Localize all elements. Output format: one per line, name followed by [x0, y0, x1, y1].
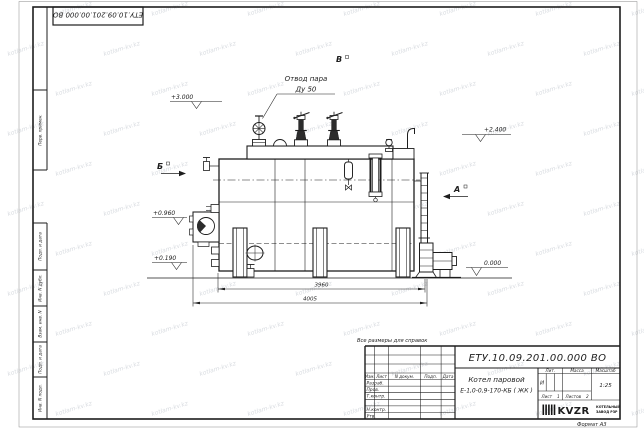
view-label-a: А [453, 185, 460, 194]
watermark-text: kotlam-kv.kz [103, 120, 142, 138]
watermark-text: kotlam-kv.kz [535, 240, 574, 258]
watermark-text: kotlam-kv.kz [7, 40, 46, 58]
watermark-text: kotlam-kv.kz [487, 280, 526, 298]
product-name-line2: Е-1,0-0,9-170-КБ ( ЖК ) [460, 388, 533, 395]
sheets-value: 2 [586, 394, 589, 399]
dome-fitting [274, 140, 287, 146]
watermark-text: kotlam-kv.kz [439, 80, 478, 98]
watermark-text: kotlam-kv.kz [295, 40, 334, 58]
watermark-text: kotlam-kv.kz [583, 200, 622, 218]
watermark-text: kotlam-kv.kz [631, 400, 644, 418]
elevation-0000: 0.000 [484, 260, 501, 267]
elevation-0190: +0.190 [154, 255, 176, 262]
reference-note: Все размеры для справок [357, 338, 428, 344]
elevation-3000: +3.000 [171, 94, 193, 101]
kvzr-logo-text: KVZR [558, 406, 590, 417]
watermark-text: kotlam-kv.kz [199, 40, 238, 58]
side-label-podp-data-2: Подп. и дата [38, 345, 43, 374]
callout-steam-line2: Ду 50 [295, 86, 317, 94]
col-data: Дата [442, 374, 454, 379]
sheets-label: Листов [565, 394, 582, 399]
view-label-b-side: Б [157, 162, 163, 171]
side-label-perv-primen: Перв. примен. [38, 114, 43, 145]
steam-outlet-valve [253, 116, 266, 146]
watermark-text: kotlam-kv.kz [439, 160, 478, 178]
col-n-dokum: N докум. [395, 374, 414, 379]
dim-3960: 3960 [315, 283, 329, 289]
watermark-text: kotlam-kv.kz [343, 80, 382, 98]
watermark-text: kotlam-kv.kz [103, 360, 142, 378]
row-prov: Пров. [367, 387, 380, 393]
elevation-2400: +2.400 [484, 127, 506, 134]
watermark-text: kotlam-kv.kz [535, 320, 574, 338]
watermark-text: kotlam-kv.kz [535, 160, 574, 178]
callout-steam-line1: Отвод пара [285, 75, 328, 83]
dim-4005: 4005 [303, 297, 317, 303]
row-n-kontr: Н.контр. [367, 407, 387, 413]
lit-header: Лит. [544, 368, 555, 373]
top-stamp-doc-number: ЕТУ.10.09.201.00.000 ВО [52, 11, 143, 19]
side-label-vzam-inv: Взам. инв. N [38, 310, 43, 338]
watermark-text: kotlam-kv.kz [151, 0, 190, 18]
masshtab-header: Масштаб [596, 368, 616, 373]
watermark-text: kotlam-kv.kz [151, 320, 190, 338]
kvzr-logo-sub2: ЗАВОД РЗР [596, 410, 618, 414]
watermark-text: kotlam-kv.kz [391, 40, 430, 58]
watermark-text: kotlam-kv.kz [535, 0, 574, 18]
watermark-text: kotlam-kv.kz [151, 400, 190, 418]
watermark-text: kotlam-kv.kz [247, 80, 286, 98]
col-list: Лист [375, 374, 387, 379]
steam-outlet-callout [263, 94, 336, 119]
watermark-text: kotlam-kv.kz [343, 320, 382, 338]
col-podp: Подп. [424, 374, 437, 379]
sheet-value: 1 [557, 394, 560, 399]
safety-valve-2 [326, 112, 342, 146]
kvzr-logo-sub1: КОТЕЛЬНЫЙ [596, 404, 620, 409]
row-razrab: Разраб. [367, 381, 384, 387]
watermark-text: kotlam-kv.kz [631, 80, 644, 98]
watermark-text: kotlam-kv.kz [343, 0, 382, 18]
watermark-text: kotlam-kv.kz [55, 320, 94, 338]
row-t-kontr: Т.контр. [367, 394, 386, 400]
watermark-text: kotlam-kv.kz [583, 40, 622, 58]
lit-value: И [540, 381, 544, 387]
side-label-inv-dubl: Инв. N дубл. [38, 274, 43, 301]
watermark-text: kotlam-kv.kz [55, 160, 94, 178]
side-label-podp-data-1: Подп. и дата [38, 232, 43, 261]
gost-drawing-svg: kotlam-kv.kzkotlam-kv.kzkotlam-kv.kzkotl… [0, 0, 644, 430]
watermark-text: kotlam-kv.kz [55, 240, 94, 258]
watermark-text: kotlam-kv.kz [103, 200, 142, 218]
watermark-text: kotlam-kv.kz [247, 400, 286, 418]
side-label-inv-podl: Инв. N подл. [38, 384, 43, 412]
watermark-text: kotlam-kv.kz [631, 240, 644, 258]
col-izm: Изм. [365, 374, 375, 379]
doc-number: ЕТУ.10.09.201.00.000 ВО [469, 353, 607, 364]
watermark-text: kotlam-kv.kz [247, 0, 286, 18]
watermark-text: kotlam-kv.kz [439, 0, 478, 18]
row-utv: Утв. [367, 413, 376, 419]
watermark-text: kotlam-kv.kz [583, 280, 622, 298]
watermark-text: kotlam-kv.kz [199, 120, 238, 138]
side-column-labels: Перв. примен. Подп. и дата Инв. N дубл. … [38, 11, 144, 412]
view-label-v-top: В [336, 55, 342, 64]
watermark-text: kotlam-kv.kz [103, 280, 142, 298]
elevation-0960: +0.960 [153, 210, 175, 217]
watermark-text: kotlam-kv.kz [247, 320, 286, 338]
watermark-text: kotlam-kv.kz [439, 400, 478, 418]
watermark-text: kotlam-kv.kz [55, 80, 94, 98]
watermark-text: kotlam-kv.kz [295, 360, 334, 378]
watermark-text: kotlam-kv.kz [439, 320, 478, 338]
watermark-text: kotlam-kv.kz [631, 0, 644, 18]
watermark-text: kotlam-kv.kz [487, 200, 526, 218]
watermark-text: kotlam-kv.kz [631, 320, 644, 338]
format-label: Формат А3 [577, 422, 607, 428]
watermark-text: kotlam-kv.kz [55, 400, 94, 418]
massa-header: Масса [570, 368, 584, 373]
watermark-text: kotlam-kv.kz [487, 40, 526, 58]
watermark-text: kotlam-kv.kz [583, 120, 622, 138]
water-level-glass [369, 154, 382, 202]
scale-value: 1:25 [599, 383, 612, 389]
sheet-label: Лист [541, 394, 553, 399]
burner [190, 212, 220, 247]
watermark-text: kotlam-kv.kz [199, 360, 238, 378]
watermark-text: kotlam-kv.kz [7, 200, 46, 218]
watermark-text: kotlam-kv.kz [631, 160, 644, 178]
watermark-text: kotlam-kv.kz [535, 80, 574, 98]
drawing-sheet: kotlam-kv.kzkotlam-kv.kzkotlam-kv.kzkotl… [0, 0, 644, 430]
watermark-text: kotlam-kv.kz [103, 40, 142, 58]
product-name-line1: Котел паровой [468, 375, 525, 384]
